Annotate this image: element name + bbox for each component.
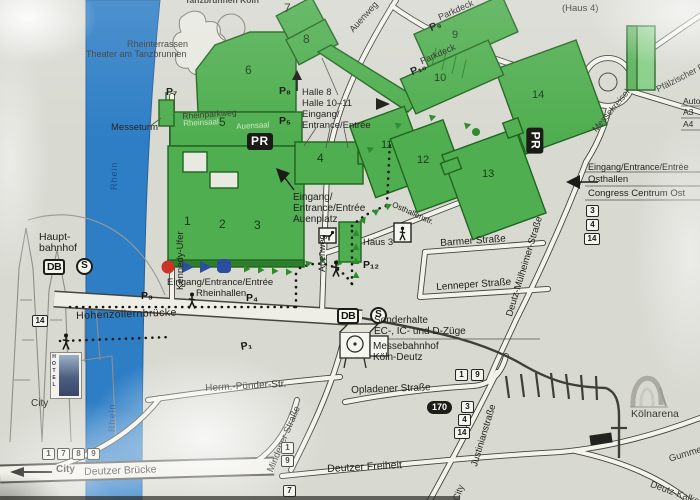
p5-marker: P₅	[279, 116, 291, 127]
east-tower-side	[627, 26, 637, 90]
db-logo-west: DB	[43, 259, 65, 275]
p3-marker: P₃	[141, 291, 153, 302]
p7-marker: P₇	[166, 87, 177, 98]
a3-label: A3	[683, 108, 693, 117]
rheinhallen-line2: Rheinhallen	[196, 289, 246, 299]
halle8-line4: Entrance/Entrée	[302, 121, 371, 131]
courtyard-2	[210, 172, 238, 188]
tanzbrunnen-label: Tanzbrunnen Köln	[185, 0, 259, 5]
haus-3-building	[339, 222, 361, 262]
kennedy-ufer-label: Kennedy-Ufer	[176, 231, 186, 290]
hotel-sign: HOTEL	[50, 352, 82, 399]
messebahnhof-line1: Messebahnhof	[373, 342, 439, 353]
hall-1-number: 1	[184, 215, 191, 228]
db-logo-messebahnhof: DB	[337, 308, 359, 324]
messekreisel-island	[599, 73, 617, 91]
hall-4-number: 4	[317, 152, 324, 165]
auenweg-mid-label: Auenweg	[318, 234, 327, 272]
tram-badge-4-ost: 4	[586, 219, 599, 231]
city-west-label: City	[31, 399, 48, 410]
tram-badge-7: 7	[57, 448, 70, 460]
sonderhalte-line1: Sonderhalte	[374, 316, 428, 327]
tram-badge-9-bahnhof: 9	[471, 369, 484, 381]
rhein-label-lower: Rhein	[108, 403, 117, 432]
parkdeck9-number: 9	[452, 30, 458, 42]
hall-2-number: 2	[219, 218, 226, 231]
messebahnhof-line2: Köln-Deutz	[373, 353, 422, 364]
haus-3-label: Haus 3	[363, 238, 393, 248]
hotel-photo	[59, 355, 79, 396]
tram-badge-1: 1	[42, 448, 55, 460]
p12-marker: P₁₂	[363, 260, 379, 271]
messeturm-label: Messeturm	[111, 123, 158, 133]
halle8-line3: Eingang/	[302, 110, 340, 120]
auenplatz-line3: Auenplatz	[293, 215, 337, 226]
blue-square-icon	[217, 259, 231, 273]
p4-marker: P₄	[246, 293, 258, 304]
halle8-line2: Halle 10–11	[302, 99, 352, 109]
city-arrow-label: City	[56, 465, 75, 476]
tram-badge-1-mind: 1	[281, 442, 294, 454]
tram-badge-14-ost: 14	[584, 233, 600, 245]
red-dot-icon	[162, 261, 175, 274]
tram-badge-3-opl: 3	[461, 401, 474, 413]
park-ride-badge-west: PR	[247, 133, 273, 150]
hall-8-number: 8	[303, 33, 310, 46]
osthallen-line1: Eingang/Entrance/Entrée	[588, 163, 689, 172]
hall-3-number: 3	[254, 219, 261, 232]
courtyard-1	[183, 152, 207, 172]
autobahn-label: Autobahn	[683, 97, 700, 106]
hotel-label: HOTEL	[51, 353, 57, 398]
sbahn-logo-west: S	[76, 258, 93, 275]
koelnarena-label: Kölnarena	[631, 409, 679, 420]
hall-12-number: 12	[417, 155, 429, 167]
tram-badge-9-mind: 9	[281, 455, 294, 467]
halle8-line1: Halle 8	[302, 88, 332, 98]
hall-13-number: 13	[482, 169, 494, 181]
hall-11-number: 11	[381, 140, 392, 152]
tram-badge-8: 8	[72, 448, 85, 460]
map-base-layer	[0, 0, 700, 500]
pedestrian-box-icon	[394, 223, 411, 242]
a4-label: A4	[683, 120, 693, 129]
hall-4	[295, 142, 363, 184]
p8-marker: P₈	[279, 86, 291, 97]
auenplatz-line2: Entrance/Entrée	[293, 204, 365, 215]
hauptbahnhof-line2: bahnhof	[39, 243, 77, 254]
auenplatz-line1: Eingang/	[293, 193, 332, 204]
hall-7-number: 7	[284, 2, 291, 15]
hall-6-number: 6	[245, 64, 252, 77]
photographed-trade-fair-map: Tanzbrunnen Köln Rheinterrassen Theater …	[0, 0, 700, 500]
park-ride-badge-east: PR	[526, 128, 543, 154]
sonderhalte-line2: EC-, IC- und D-Züge	[374, 327, 466, 338]
osthallen-line2: Osthallen	[588, 175, 628, 185]
tram-badge-9: 9	[87, 448, 100, 460]
theater-label: Theater am Tanzbrunnen	[86, 50, 186, 59]
tram-badge-3-ost: 3	[586, 205, 599, 217]
messe-tower-small	[159, 100, 174, 126]
tram-badge-1-bahnhof: 1	[455, 369, 468, 381]
tram-badge-7-freiheit: 7	[283, 485, 296, 497]
auensaal-label: Auensaal	[236, 121, 270, 131]
osthallen-line3: Congress Centrum Ost	[588, 189, 685, 199]
p1-marker: P₁	[240, 340, 253, 353]
tram-badge-14-dom: 14	[32, 315, 48, 327]
tram-badge-14-opl: 14	[454, 427, 470, 439]
tram-badge-4-opl: 4	[458, 414, 471, 426]
rhein-label-upper: Rhein	[110, 161, 119, 190]
hall-14-number: 14	[532, 90, 544, 102]
bus-badge-170: 170	[427, 401, 452, 414]
haus-4-label: (Haus 4)	[562, 4, 598, 14]
parkdeck10-number: 10	[434, 73, 446, 85]
